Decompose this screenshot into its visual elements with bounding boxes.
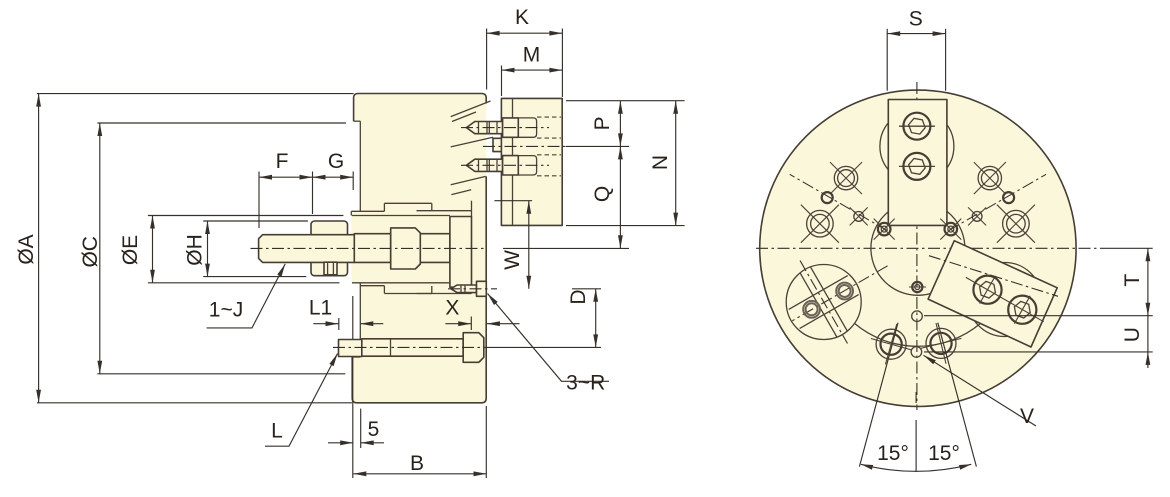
svg-text:T: T [1121, 274, 1144, 287]
svg-text:ØE: ØE [119, 235, 142, 265]
svg-text:3~R: 3~R [566, 372, 605, 395]
svg-text:W: W [501, 250, 524, 270]
svg-text:N: N [649, 155, 672, 170]
svg-text:B: B [410, 452, 424, 475]
svg-text:X: X [445, 297, 459, 320]
svg-text:ØA: ØA [15, 234, 38, 264]
svg-text:M: M [523, 44, 541, 67]
svg-text:15°: 15° [877, 442, 909, 465]
svg-text:D: D [567, 289, 590, 304]
svg-text:F: F [276, 150, 289, 173]
svg-text:L1: L1 [309, 297, 332, 320]
svg-text:V: V [1020, 405, 1034, 428]
svg-text:15°: 15° [928, 442, 960, 465]
svg-text:K: K [515, 6, 529, 29]
svg-text:L: L [271, 420, 283, 443]
svg-text:G: G [328, 150, 344, 173]
svg-text:ØC: ØC [79, 236, 102, 267]
svg-text:Q: Q [591, 186, 614, 202]
svg-text:5: 5 [368, 418, 380, 441]
svg-text:ØH: ØH [184, 234, 207, 266]
svg-text:1~J: 1~J [209, 299, 243, 322]
svg-text:S: S [909, 8, 923, 31]
svg-text:U: U [1121, 327, 1144, 342]
svg-text:P: P [591, 116, 614, 130]
